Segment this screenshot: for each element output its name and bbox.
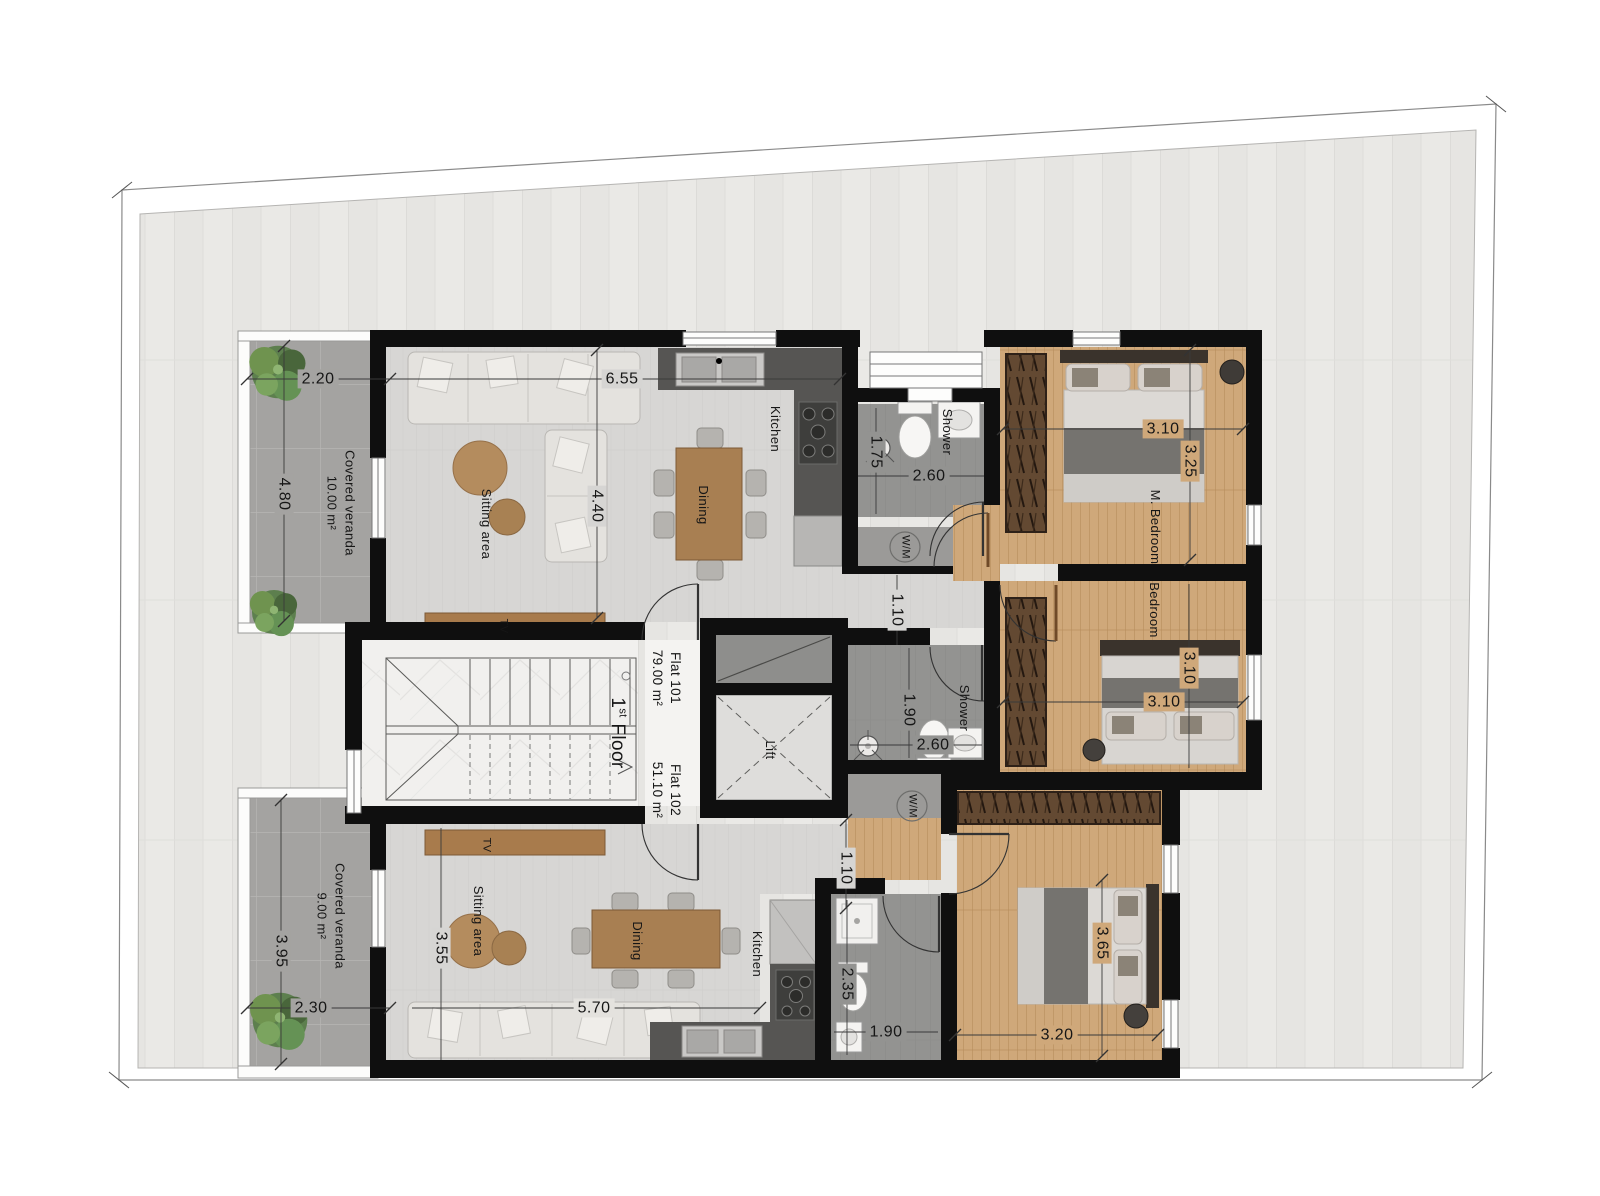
- wardrobe-icon: [1006, 598, 1046, 766]
- dim-shower102-width: 2.60: [913, 735, 954, 754]
- dining-table-102: [592, 910, 720, 968]
- room-label-dining-101: Dining: [695, 485, 711, 524]
- room-label-tv-102: TV: [479, 838, 492, 853]
- room-label-shower-101: Shower: [939, 409, 955, 455]
- room-label-bedroom: Bedroom: [1146, 582, 1162, 638]
- dim-mbedroom-height: 3.25: [1180, 441, 1199, 482]
- room-label-wm-102: W/M: [905, 794, 918, 818]
- dim-living101-width: 6.55: [602, 369, 643, 388]
- dim-shower101-width: 2.60: [909, 466, 950, 485]
- room-label-veranda-101: Covered veranda10.00 m²: [323, 450, 358, 556]
- dim-veranda101-width: 2.20: [298, 369, 339, 388]
- dim-veranda102-height: 3.95: [271, 931, 290, 972]
- dim-shower101-height: 1.75: [866, 432, 885, 473]
- dim-mbedroom-width: 3.10: [1143, 419, 1184, 438]
- dim-hall101-height: 1.10: [887, 590, 906, 631]
- dim-bedroom-height: 3.10: [1179, 648, 1198, 689]
- room-label-sitting-102: Sitting area: [470, 886, 486, 957]
- dim-bedroom-width: 3.10: [1144, 692, 1185, 711]
- bedroom-vestibule-floor: [953, 505, 1000, 581]
- corridor-102-floor: [848, 818, 941, 880]
- room-label-sitting-101: Sitting area: [478, 489, 494, 560]
- flat-101-label: Flat 10179.00 m²: [648, 650, 684, 706]
- wardrobe-icon: [958, 792, 1160, 824]
- stairwell-floor: [362, 640, 638, 806]
- dim-hall102-height: 1.10: [836, 848, 855, 889]
- room-label-lift: Lift: [762, 741, 778, 760]
- wm-102-niche: [848, 774, 941, 822]
- flat-102-label: Flat 10251.10 m²: [648, 762, 684, 818]
- page-title: 1st Floor: [605, 697, 628, 768]
- dim-sitting102-height: 3.55: [431, 928, 450, 969]
- room-label-shower-102: Shower: [956, 685, 972, 731]
- room-label-kitchen-101: Kitchen: [767, 406, 783, 452]
- dim-veranda102-width: 2.30: [291, 998, 332, 1017]
- room-label-tv-101: TV: [496, 619, 509, 634]
- room-label-wm-101: W/M: [898, 535, 911, 559]
- dim-bath102-height: 2.35: [837, 964, 856, 1005]
- dim-living102-width: 5.70: [574, 998, 615, 1017]
- room-label-veranda-102: Covered veranda9.00 m²: [313, 863, 348, 969]
- dim-bedroom102-width: 3.20: [1037, 1025, 1078, 1044]
- dim-veranda101-height: 4.80: [274, 474, 293, 515]
- wardrobe-icon: [1006, 354, 1046, 532]
- dim-sitting101-height: 4.40: [587, 486, 606, 527]
- room-label-kitchen-102: Kitchen: [749, 931, 765, 977]
- dim-bath102-width: 1.90: [866, 1022, 907, 1041]
- floor-plan-drawing: [0, 0, 1600, 1196]
- dim-bedroom102-height: 3.65: [1092, 923, 1111, 964]
- room-label-dining-102: Dining: [629, 921, 645, 960]
- dim-shower102-height: 1.90: [899, 690, 918, 731]
- floor-plan: 2.20 6.55 3.10 2.60 3.10 2.60 2.30 5.70 …: [0, 0, 1600, 1196]
- room-label-m-bedroom: M. Bedroom: [1147, 490, 1163, 565]
- tv-bench-102: [425, 830, 605, 855]
